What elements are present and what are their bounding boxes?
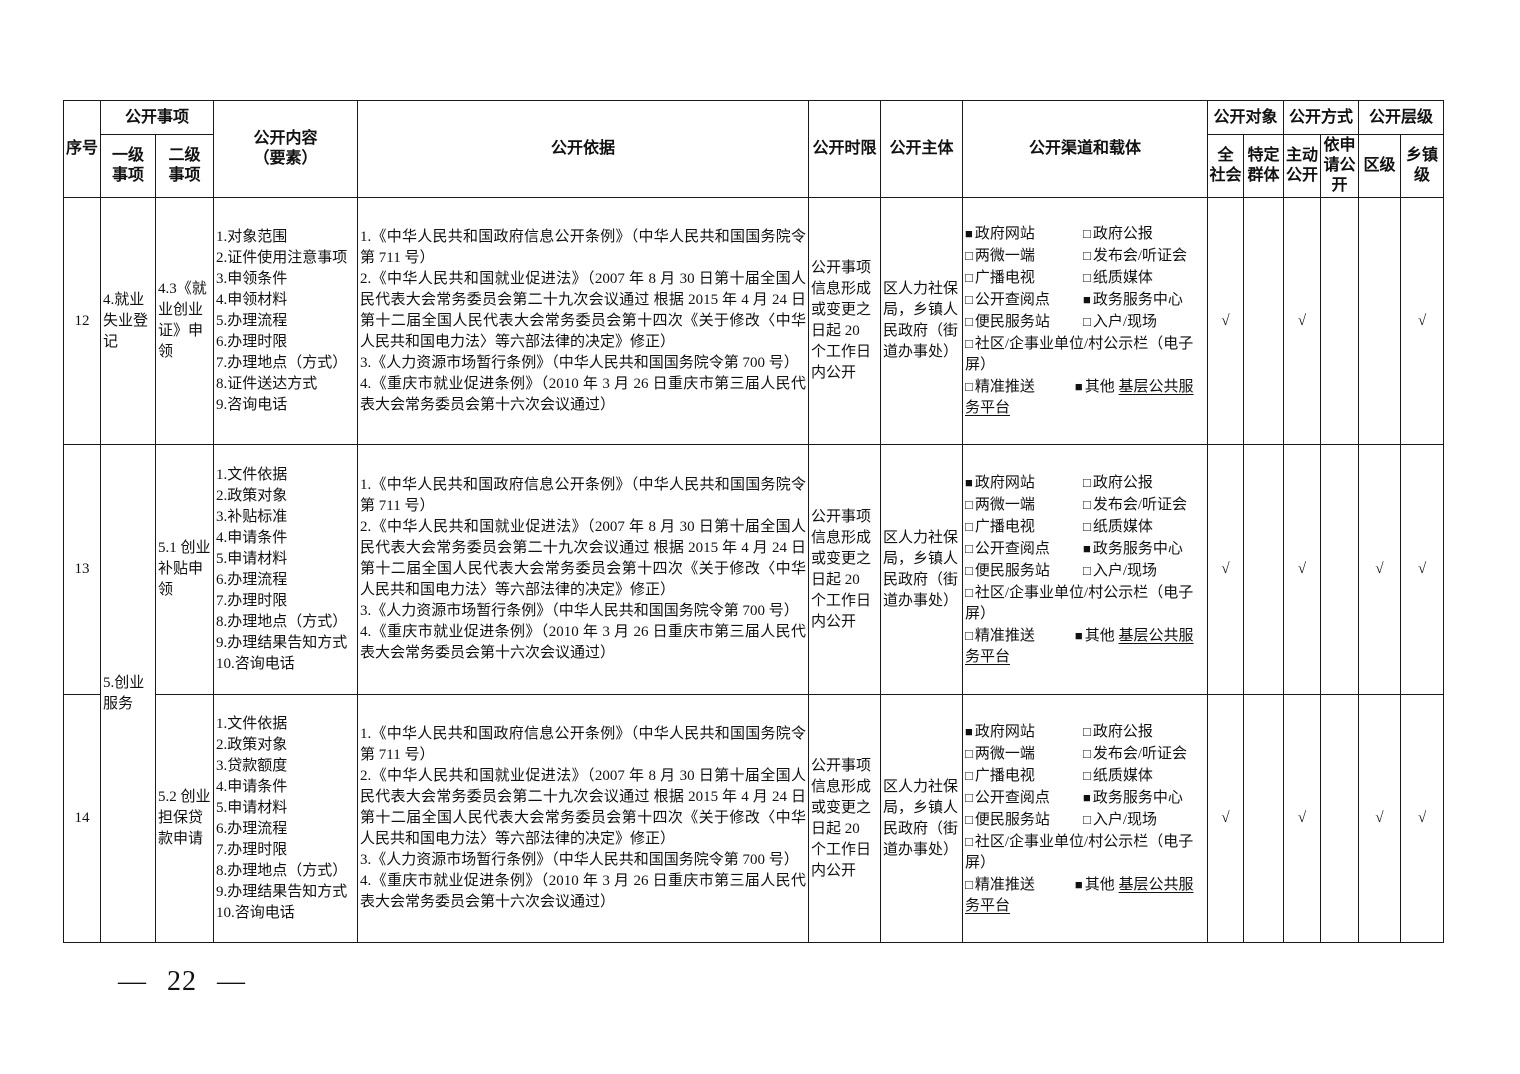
check-specific-group: [1244, 695, 1284, 943]
channel-item: ■政府网站: [965, 223, 1083, 245]
checkbox-unchecked-icon: □: [965, 812, 973, 827]
channel-pair-row: ■政府网站□政府公报: [965, 472, 1205, 494]
channel-pair-row: ■政府网站□政府公报: [965, 223, 1205, 245]
channel-item: ■政务服务中心: [1083, 787, 1205, 809]
table-row: 14 5.2 创业担保贷款申请 1.文件依据 2.政策对象 3.贷款额度 4.申…: [64, 695, 1444, 943]
checkbox-unchecked-icon: □: [965, 790, 973, 805]
channel-pair-row: □公开查阅点■政务服务中心: [965, 538, 1205, 560]
header-basis: 公开依据: [358, 101, 809, 198]
checkbox-unchecked-icon: □: [965, 585, 973, 600]
law-item: 4.《重庆市就业促进条例》（2010 年 3 月 26 日重庆市第三届人民代表大…: [360, 374, 806, 416]
channels-cell: ■政府网站□政府公报□两微一端□发布会/听证会□广播电视□纸质媒体□公开查阅点■…: [963, 198, 1208, 445]
checkbox-unchecked-icon: □: [965, 336, 973, 351]
checkbox-unchecked-icon: □: [1083, 563, 1091, 578]
header-level2-item: 二级 事项: [156, 135, 214, 198]
header-upon-request: 依申 请公 开: [1321, 135, 1359, 198]
channel-item: □便民服务站: [965, 560, 1083, 582]
channel-pair-row: □便民服务站□入户/现场: [965, 809, 1205, 831]
channel-item: □公开查阅点: [965, 289, 1083, 311]
channel-pair-row: □广播电视□纸质媒体: [965, 765, 1205, 787]
check-specific-group: [1244, 198, 1284, 445]
channel-item: □精准推送: [965, 877, 1035, 893]
table-row: 12 4.就业失业登记 4.3《就业创业证》申领 1.对象范围 2.证件使用注意…: [64, 198, 1444, 445]
checkbox-checked-icon: ■: [1075, 379, 1083, 394]
header-time-limit: 公开时限: [809, 101, 881, 198]
content-elements-cell: 1.对象范围 2.证件使用注意事项 3.申领条件 4.申领材料 5.办理流程 6…: [214, 198, 358, 445]
check-upon-request: [1321, 198, 1359, 445]
basis-cell: 1.《中华人民共和国政府信息公开条例》（中华人民共和国国务院令第 711 号） …: [358, 695, 809, 943]
channel-tail-row: □精准推送■其他 基层公共服务平台: [965, 376, 1205, 419]
disclosure-table: 序号 公开事项 公开内容 （要素） 公开依据 公开时限 公开主体 公开渠道和载体…: [63, 100, 1444, 943]
channel-pair-row: □两微一端□发布会/听证会: [965, 494, 1205, 516]
subject-cell: 区人力社保局，乡镇人民政府（街道办事处）: [881, 695, 963, 943]
law-item: 4.《重庆市就业促进条例》（2010 年 3 月 26 日重庆市第三届人民代表大…: [360, 871, 806, 913]
checkbox-unchecked-icon: □: [1083, 812, 1091, 827]
checkbox-unchecked-icon: □: [965, 768, 973, 783]
time-limit-cell: 公开事项信息形成或变更之日起 20 个工作日内公开: [809, 445, 881, 695]
checkbox-unchecked-icon: □: [965, 541, 973, 556]
channel-item: □便民服务站: [965, 311, 1083, 333]
channel-pair-row: □便民服务站□入户/现场: [965, 311, 1205, 333]
channel-tail-row: □精准推送■其他 基层公共服务平台: [965, 625, 1205, 668]
channel-item: □入户/现场: [1083, 311, 1205, 333]
checkbox-unchecked-icon: □: [1083, 475, 1091, 490]
channel-pair-row: □公开查阅点■政务服务中心: [965, 289, 1205, 311]
checkbox-unchecked-icon: □: [1083, 724, 1091, 739]
basis-cell: 1.《中华人民共和国政府信息公开条例》（中华人民共和国国务院令第 711 号） …: [358, 198, 809, 445]
channel-item: □精准推送: [965, 379, 1035, 395]
level2-item-cell: 4.3《就业创业证》申领: [156, 198, 214, 445]
channel-tail-row: □精准推送■其他 基层公共服务平台: [965, 874, 1205, 917]
checkbox-unchecked-icon: □: [965, 877, 973, 892]
check-township-level: √: [1401, 198, 1444, 445]
basis-cell: 1.《中华人民共和国政府信息公开条例》（中华人民共和国国务院令第 711 号） …: [358, 445, 809, 695]
header-district-level: 区级: [1359, 135, 1401, 198]
check-proactive: √: [1284, 695, 1321, 943]
channel-wide-row: □社区/企事业单位/村公示栏（电子屏）: [965, 582, 1205, 625]
channel-item: □社区/企事业单位/村公示栏（电子屏）: [965, 834, 1193, 871]
check-proactive: √: [1284, 198, 1321, 445]
check-specific-group: [1244, 445, 1284, 695]
checkbox-unchecked-icon: □: [965, 519, 973, 534]
channel-pair-row: □广播电视□纸质媒体: [965, 267, 1205, 289]
checkbox-unchecked-icon: □: [1083, 270, 1091, 285]
channel-item: □发布会/听证会: [1083, 494, 1205, 516]
checkbox-unchecked-icon: □: [1083, 746, 1091, 761]
checkbox-checked-icon: ■: [1083, 292, 1091, 307]
header-disclosure-items: 公开事项: [101, 101, 214, 135]
channel-item: □政府公报: [1083, 472, 1205, 494]
law-item: 2.《中华人民共和国就业促进法》（2007 年 8 月 30 日第十届全国人民代…: [360, 269, 806, 353]
checkbox-unchecked-icon: □: [965, 834, 973, 849]
seq-cell: 13: [64, 445, 101, 695]
checkbox-checked-icon: ■: [965, 724, 973, 739]
channel-item: □纸质媒体: [1083, 516, 1205, 538]
channel-item: □两微一端: [965, 245, 1083, 267]
check-township-level: √: [1401, 695, 1444, 943]
channel-pair-row: □便民服务站□入户/现场: [965, 560, 1205, 582]
channel-item: □纸质媒体: [1083, 765, 1205, 787]
law-item: 3.《人力资源市场暂行条例》（中华人民共和国国务院令第 700 号）: [360, 353, 806, 374]
checkbox-unchecked-icon: □: [965, 292, 973, 307]
checkbox-unchecked-icon: □: [965, 270, 973, 285]
channel-item: ■政务服务中心: [1083, 538, 1205, 560]
content-elements-cell: 1.文件依据 2.政策对象 3.补贴标准 4.申请条件 5.申请材料 6.办理流…: [214, 445, 358, 695]
channels-cell: ■政府网站□政府公报□两微一端□发布会/听证会□广播电视□纸质媒体□公开查阅点■…: [963, 695, 1208, 943]
checkbox-unchecked-icon: □: [965, 497, 973, 512]
check-upon-request: [1321, 695, 1359, 943]
checkbox-checked-icon: ■: [1083, 790, 1091, 805]
check-district-level: √: [1359, 695, 1401, 943]
checkbox-unchecked-icon: □: [1083, 768, 1091, 783]
channel-item: ■政府网站: [965, 721, 1083, 743]
check-whole-society: √: [1208, 695, 1244, 943]
checkbox-unchecked-icon: □: [965, 248, 973, 263]
check-proactive: √: [1284, 445, 1321, 695]
channel-item: ■政府网站: [965, 472, 1083, 494]
header-seq: 序号: [64, 101, 101, 198]
checkbox-unchecked-icon: □: [1083, 314, 1091, 329]
header-township-level: 乡镇 级: [1401, 135, 1444, 198]
channel-item: □两微一端: [965, 743, 1083, 765]
seq-cell: 12: [64, 198, 101, 445]
channel-item: □两微一端: [965, 494, 1083, 516]
subject-cell: 区人力社保局，乡镇人民政府（街道办事处）: [881, 445, 963, 695]
channel-item: □政府公报: [1083, 223, 1205, 245]
channel-pair-row: □两微一端□发布会/听证会: [965, 245, 1205, 267]
checkbox-unchecked-icon: □: [965, 314, 973, 329]
channel-item: □社区/企事业单位/村公示栏（电子屏）: [965, 336, 1193, 373]
level1-item-cell: 5.创业服务: [101, 445, 156, 943]
checkbox-checked-icon: ■: [965, 226, 973, 241]
header-channels: 公开渠道和载体: [963, 101, 1208, 198]
time-limit-cell: 公开事项信息形成或变更之日起 20 个工作日内公开: [809, 695, 881, 943]
channel-item: □发布会/听证会: [1083, 245, 1205, 267]
header-content: 公开内容 （要素）: [214, 101, 358, 198]
channel-item: □精准推送: [965, 628, 1035, 644]
channel-item: □社区/企事业单位/村公示栏（电子屏）: [965, 585, 1193, 622]
law-item: 2.《中华人民共和国就业促进法》（2007 年 8 月 30 日第十届全国人民代…: [360, 517, 806, 601]
checkbox-unchecked-icon: □: [965, 746, 973, 761]
channel-item: ■其他: [1075, 379, 1115, 395]
channel-wide-row: □社区/企事业单位/村公示栏（电子屏）: [965, 831, 1205, 874]
channel-item: ■其他: [1075, 628, 1115, 644]
checkbox-checked-icon: ■: [965, 475, 973, 490]
header-proactive: 主动 公开: [1284, 135, 1321, 198]
checkbox-checked-icon: ■: [1075, 628, 1083, 643]
checkbox-checked-icon: ■: [1075, 877, 1083, 892]
check-district-level: √: [1359, 445, 1401, 695]
content-elements-cell: 1.文件依据 2.政策对象 3.贷款额度 4.申请条件 5.申请材料 6.办理流…: [214, 695, 358, 943]
channel-item: ■政务服务中心: [1083, 289, 1205, 311]
header-specific-group: 特定 群体: [1244, 135, 1284, 198]
channel-item: ■其他: [1075, 877, 1115, 893]
checkbox-unchecked-icon: □: [965, 379, 973, 394]
checkbox-checked-icon: ■: [1083, 541, 1091, 556]
channel-item: □广播电视: [965, 765, 1083, 787]
channel-pair-row: □公开查阅点■政务服务中心: [965, 787, 1205, 809]
checkbox-unchecked-icon: □: [965, 628, 973, 643]
checkbox-unchecked-icon: □: [1083, 497, 1091, 512]
channels-cell: ■政府网站□政府公报□两微一端□发布会/听证会□广播电视□纸质媒体□公开查阅点■…: [963, 445, 1208, 695]
channel-item: □广播电视: [965, 267, 1083, 289]
channel-item: □入户/现场: [1083, 560, 1205, 582]
header-whole-society: 全 社会: [1208, 135, 1244, 198]
check-whole-society: √: [1208, 445, 1244, 695]
law-item: 4.《重庆市就业促进条例》（2010 年 3 月 26 日重庆市第三届人民代表大…: [360, 622, 806, 664]
channel-wide-row: □社区/企事业单位/村公示栏（电子屏）: [965, 333, 1205, 376]
level2-item-cell: 5.2 创业担保贷款申请: [156, 695, 214, 943]
header-method: 公开方式: [1284, 101, 1359, 135]
channel-item: □发布会/听证会: [1083, 743, 1205, 765]
header-subject: 公开主体: [881, 101, 963, 198]
header-audience: 公开对象: [1208, 101, 1284, 135]
channel-pair-row: ■政府网站□政府公报: [965, 721, 1205, 743]
law-item: 1.《中华人民共和国政府信息公开条例》（中华人民共和国国务院令第 711 号）: [360, 475, 806, 517]
channel-item: □广播电视: [965, 516, 1083, 538]
checkbox-unchecked-icon: □: [965, 563, 973, 578]
channel-item: □纸质媒体: [1083, 267, 1205, 289]
law-item: 2.《中华人民共和国就业促进法》（2007 年 8 月 30 日第十届全国人民代…: [360, 766, 806, 850]
law-item: 3.《人力资源市场暂行条例》（中华人民共和国国务院令第 700 号）: [360, 601, 806, 622]
level1-item-cell: 4.就业失业登记: [101, 198, 156, 445]
document-page: 序号 公开事项 公开内容 （要素） 公开依据 公开时限 公开主体 公开渠道和载体…: [0, 0, 1520, 1074]
table-row: 13 5.创业服务 5.1 创业补贴申领 1.文件依据 2.政策对象 3.补贴标…: [64, 445, 1444, 695]
subject-cell: 区人力社保局，乡镇人民政府（街道办事处）: [881, 198, 963, 445]
channel-pair-row: □两微一端□发布会/听证会: [965, 743, 1205, 765]
channel-item: □政府公报: [1083, 721, 1205, 743]
check-upon-request: [1321, 445, 1359, 695]
check-township-level: √: [1401, 445, 1444, 695]
header-level1-item: 一级 事项: [101, 135, 156, 198]
law-item: 1.《中华人民共和国政府信息公开条例》（中华人民共和国国务院令第 711 号）: [360, 227, 806, 269]
check-district-level: [1359, 198, 1401, 445]
page-number: — 22 —: [118, 966, 246, 998]
channel-item: □公开查阅点: [965, 787, 1083, 809]
checkbox-unchecked-icon: □: [1083, 226, 1091, 241]
channel-item: □便民服务站: [965, 809, 1083, 831]
channel-pair-row: □广播电视□纸质媒体: [965, 516, 1205, 538]
seq-cell: 14: [64, 695, 101, 943]
checkbox-unchecked-icon: □: [1083, 248, 1091, 263]
channel-item: □入户/现场: [1083, 809, 1205, 831]
law-item: 3.《人力资源市场暂行条例》（中华人民共和国国务院令第 700 号）: [360, 850, 806, 871]
time-limit-cell: 公开事项信息形成或变更之日起 20 个工作日内公开: [809, 198, 881, 445]
check-whole-society: √: [1208, 198, 1244, 445]
header-level: 公开层级: [1359, 101, 1444, 135]
checkbox-unchecked-icon: □: [1083, 519, 1091, 534]
law-item: 1.《中华人民共和国政府信息公开条例》（中华人民共和国国务院令第 711 号）: [360, 724, 806, 766]
channel-item: □公开查阅点: [965, 538, 1083, 560]
level2-item-cell: 5.1 创业补贴申领: [156, 445, 214, 695]
